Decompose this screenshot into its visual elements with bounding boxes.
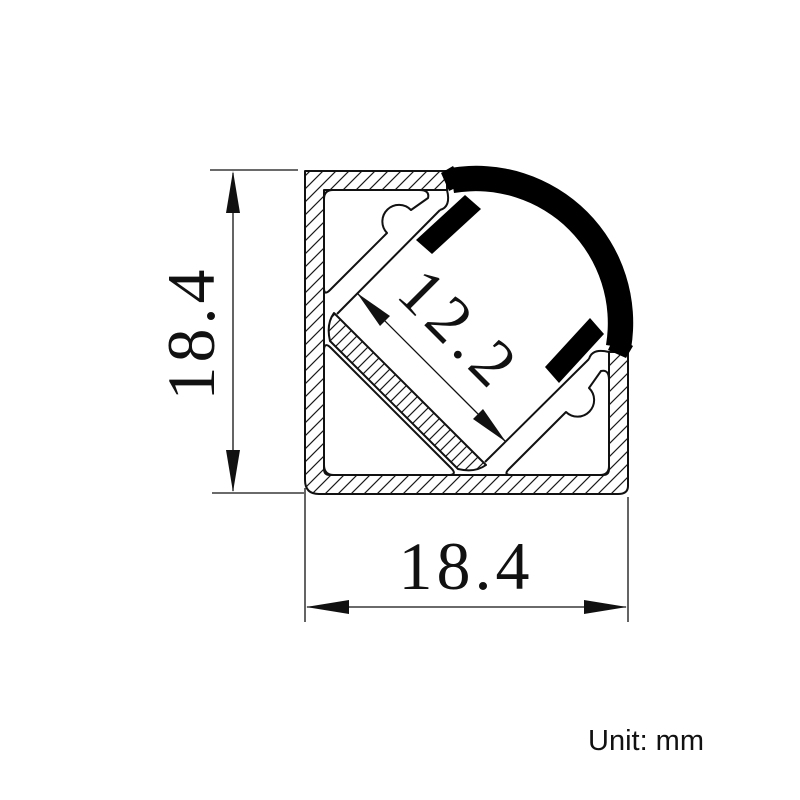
unit-note: Unit: mm: [588, 725, 704, 757]
width-value-label: 18.4: [399, 528, 534, 604]
height-value-label: 18.4: [153, 266, 229, 401]
profile-cross-section-drawing: 18.4 18.4 12.2 Unit: mm: [0, 0, 800, 800]
drawing-canvas: 18.4 18.4 12.2 Unit: mm: [0, 0, 800, 800]
